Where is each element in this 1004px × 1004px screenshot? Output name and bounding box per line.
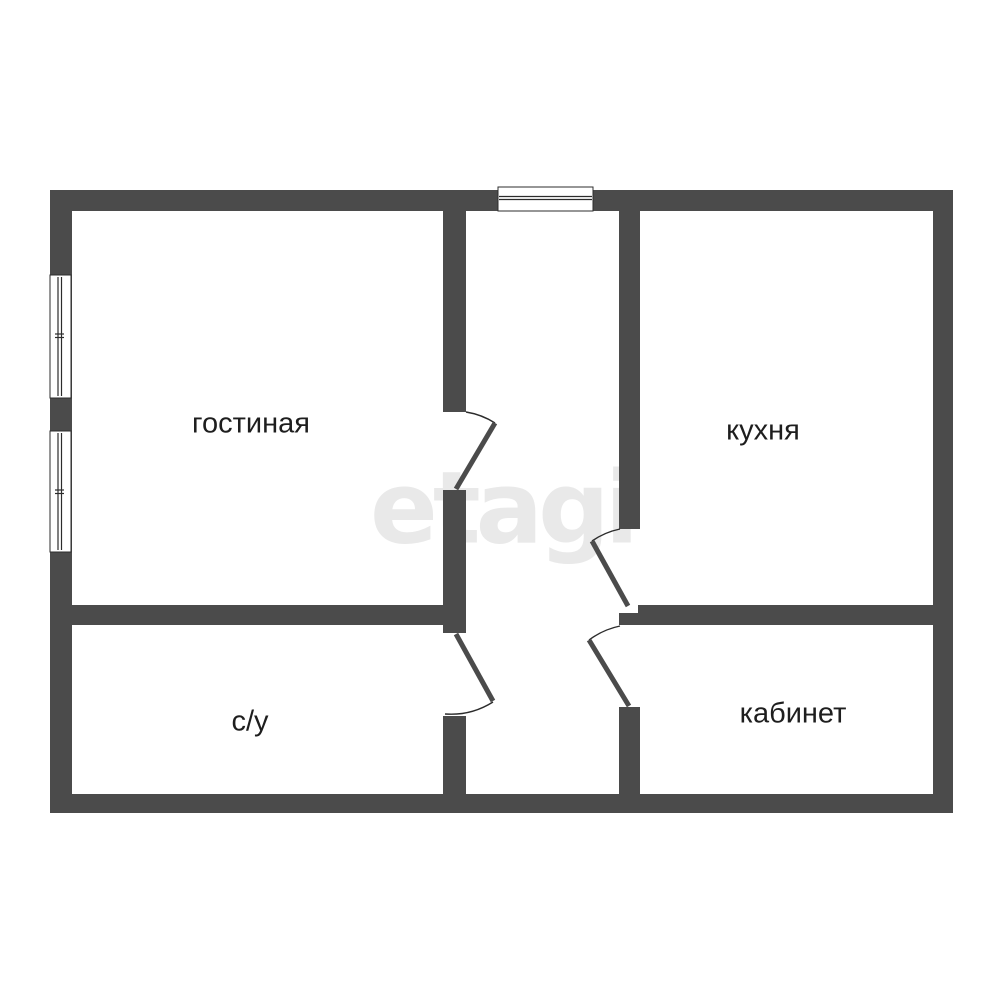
door-kitchen-swing-arc — [592, 529, 620, 541]
room-label-kitchen: кухня — [726, 415, 800, 448]
window-left-lower — [50, 431, 71, 552]
wall-outer-right — [933, 190, 953, 813]
door-bathroom-swing-arc — [445, 702, 493, 714]
door-kitchen-leaf — [592, 541, 628, 606]
room-label-living: гостиная — [192, 408, 310, 441]
wall-kitchen-left-upper — [619, 211, 640, 529]
wall-outer-bottom — [50, 794, 953, 813]
wall-office-left — [619, 707, 640, 794]
door-living-leaf — [456, 423, 495, 489]
floor-plan-drawing — [0, 0, 1004, 1004]
window-left-lower-frame — [50, 431, 71, 552]
window-left-upper — [50, 275, 71, 398]
door-office-leaf — [589, 640, 629, 706]
wall-living-bathroom-divider — [72, 605, 466, 625]
wall-bathroom-right — [443, 716, 466, 794]
room-label-bathroom: с/у — [231, 706, 268, 739]
window-left-upper-frame — [50, 275, 71, 398]
window-top — [498, 187, 593, 211]
door-bathroom-leaf — [456, 634, 493, 701]
wall-office-divider-jamb — [619, 613, 638, 625]
wall-kitchen-office-divider — [638, 605, 933, 625]
door-office-swing-arc — [589, 626, 620, 640]
wall-living-right-upper — [443, 211, 466, 412]
room-label-office: кабинет — [740, 698, 847, 731]
door-living-swing-arc — [466, 412, 495, 423]
floor-plan-canvas: etagi — [0, 0, 1004, 1004]
